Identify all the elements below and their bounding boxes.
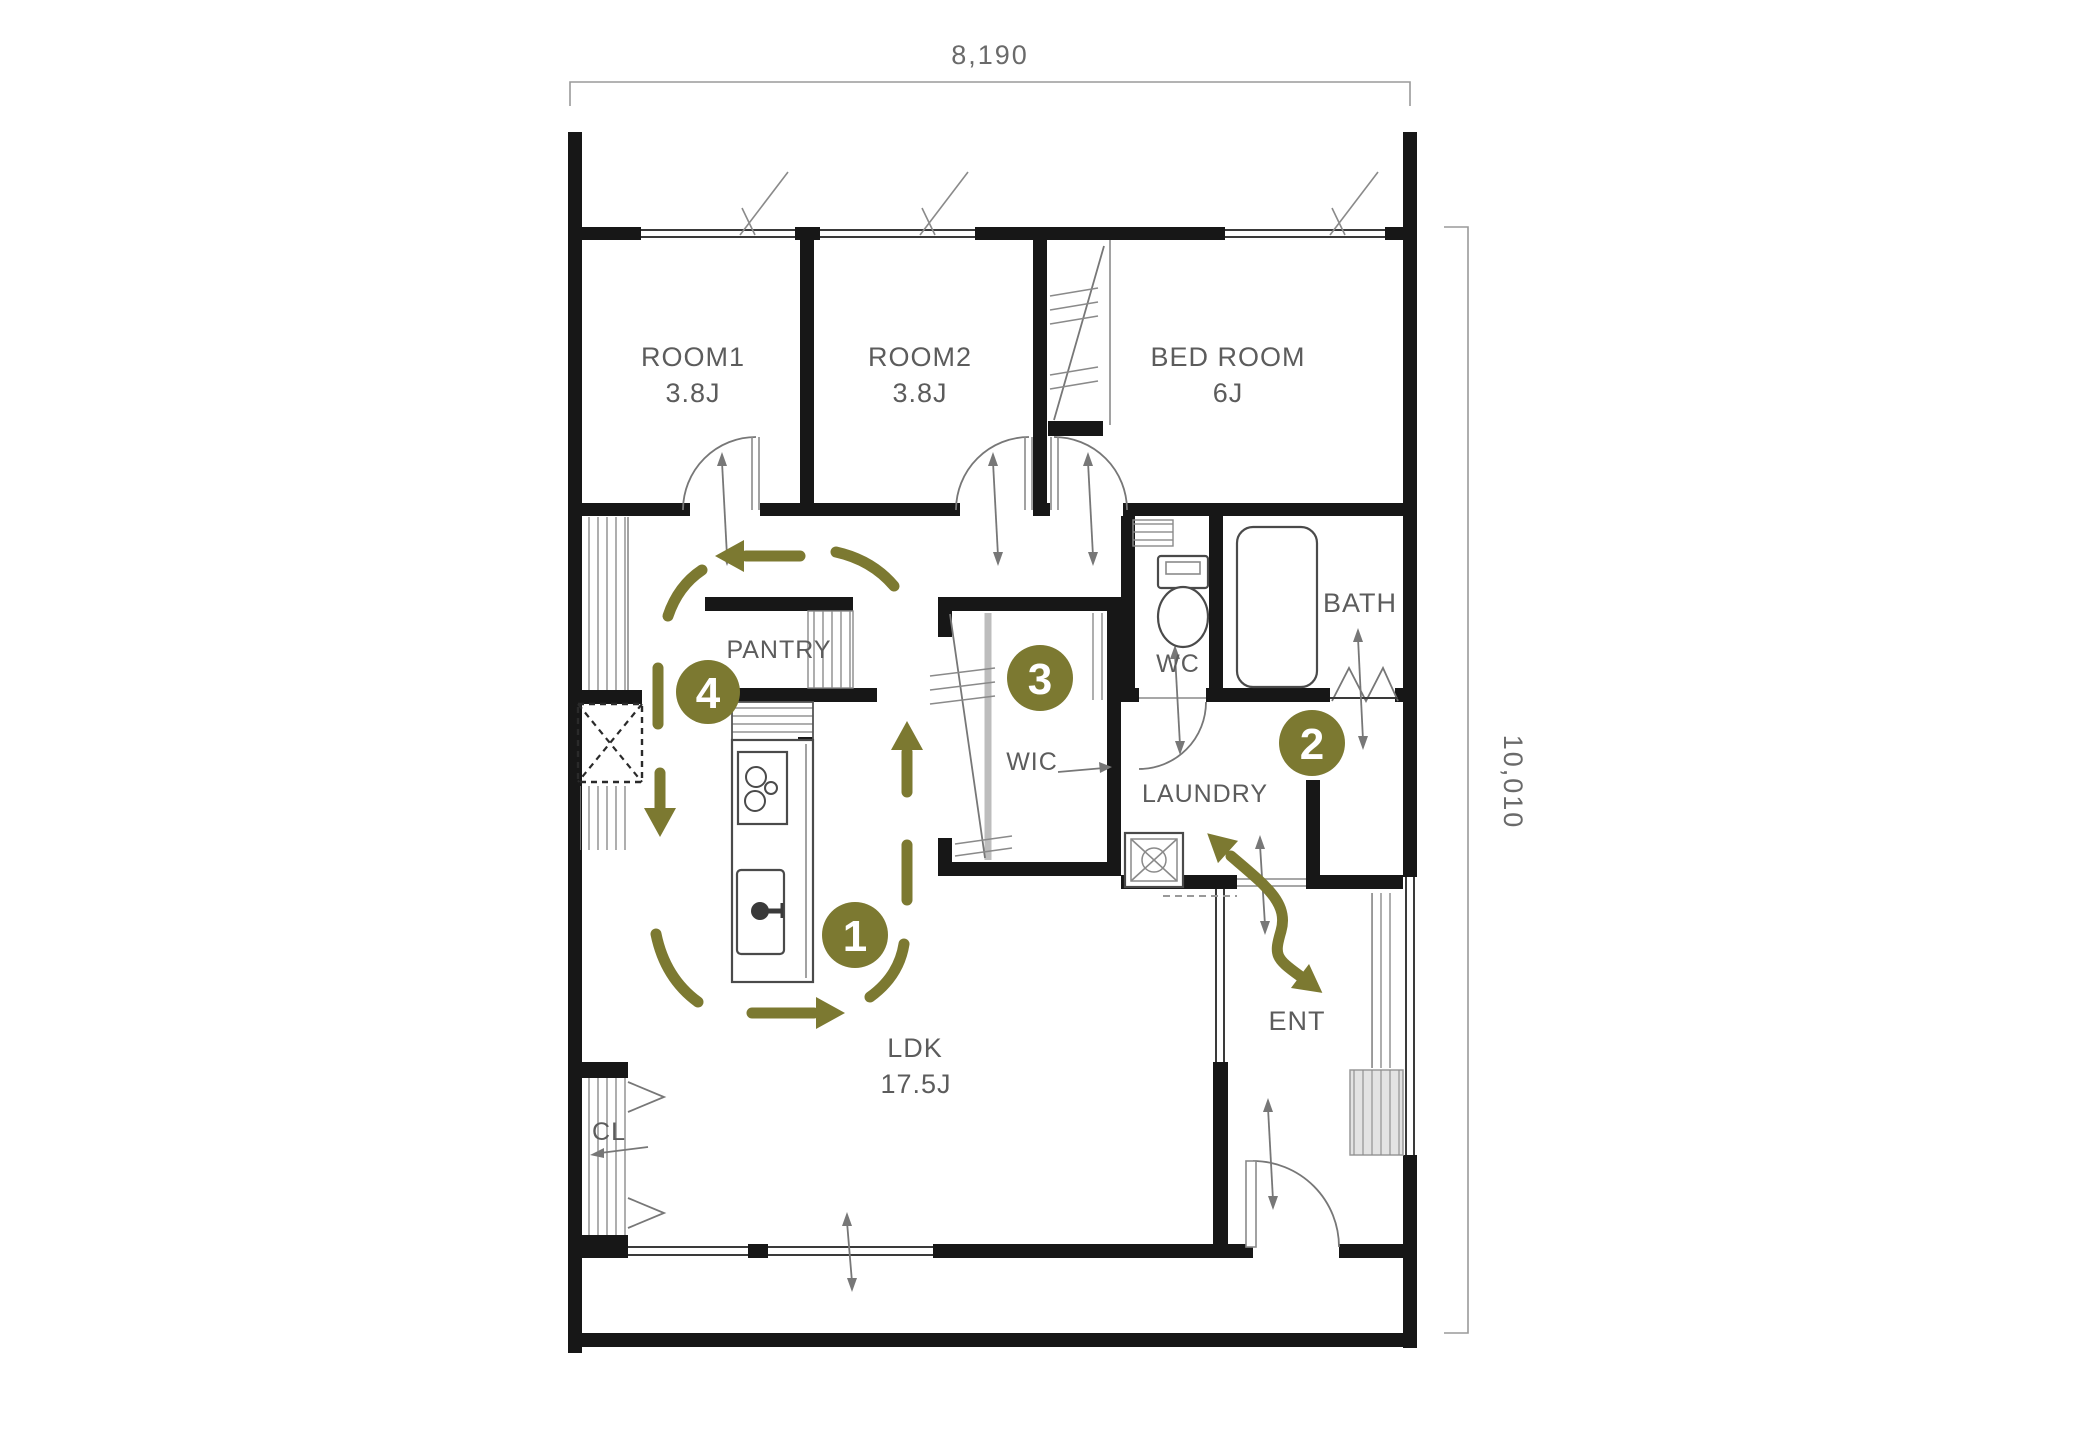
kitchen-island	[732, 702, 813, 982]
bedroom-door	[1051, 437, 1127, 566]
pantry-label: PANTRY	[726, 636, 831, 664]
ent-cabinet	[1372, 893, 1398, 1068]
room1-door	[683, 437, 759, 566]
ldk-window-swing	[842, 1212, 857, 1292]
floor-plan: 8,190 10,010	[0, 0, 2083, 1431]
cl-label: CL	[592, 1118, 626, 1146]
washing-machine	[1125, 833, 1183, 887]
skylight-hatch	[578, 704, 642, 782]
west-storage-upper	[582, 517, 628, 690]
dimension-height-label: 10,010	[1498, 735, 1528, 830]
svg-text:2: 2	[1300, 720, 1324, 769]
window-room2	[820, 172, 975, 237]
wic-label-group: WIC	[1006, 748, 1112, 776]
room2-size: 3.8J	[892, 378, 947, 408]
marker-1: 1	[822, 902, 888, 968]
room1-label: ROOM1	[641, 342, 745, 372]
laundry-label: LAUNDRY	[1142, 780, 1268, 808]
toilet	[1158, 556, 1208, 647]
floor-plan-drawing: 8,190 10,010	[0, 0, 2083, 1431]
bedroom-label: BED ROOM	[1150, 342, 1305, 372]
wic-shelves	[1086, 613, 1107, 700]
ldk-size: 17.5J	[880, 1069, 951, 1099]
wc-shelf	[1133, 520, 1173, 546]
room1-size: 3.8J	[665, 378, 720, 408]
bedroom-closet-door	[1050, 240, 1110, 425]
dimension-width-label: 8,190	[951, 40, 1029, 70]
svg-text:3: 3	[1028, 655, 1052, 704]
laundry-ent-arrow	[1231, 856, 1300, 976]
window-ent-side	[1406, 877, 1414, 1155]
west-storage-lower	[580, 786, 632, 850]
room2-door	[956, 437, 1032, 566]
window-ldk-south	[628, 1247, 933, 1255]
cooktop	[738, 752, 787, 824]
wc-label: WC	[1156, 650, 1200, 678]
marker-3: 3	[1007, 645, 1073, 711]
svg-text:4: 4	[696, 669, 721, 718]
bedroom-size: 6J	[1213, 378, 1244, 408]
wic-folding-door	[930, 613, 1012, 860]
ldk-label: LDK	[887, 1033, 943, 1063]
cl-closet	[582, 1078, 664, 1235]
bath-label: BATH	[1323, 588, 1397, 618]
marker-2: 2	[1279, 710, 1345, 776]
wic-label: WIC	[1006, 748, 1058, 776]
bathtub	[1237, 527, 1317, 687]
svg-text:1: 1	[843, 912, 867, 961]
partition-ldk-ent	[1216, 889, 1224, 1062]
entrance-door	[1246, 1098, 1339, 1247]
ent-label: ENT	[1269, 1006, 1326, 1036]
room2-label: ROOM2	[868, 342, 972, 372]
marker-4: 4	[676, 660, 740, 724]
window-bedroom	[1225, 172, 1385, 237]
window-room1	[641, 172, 795, 237]
